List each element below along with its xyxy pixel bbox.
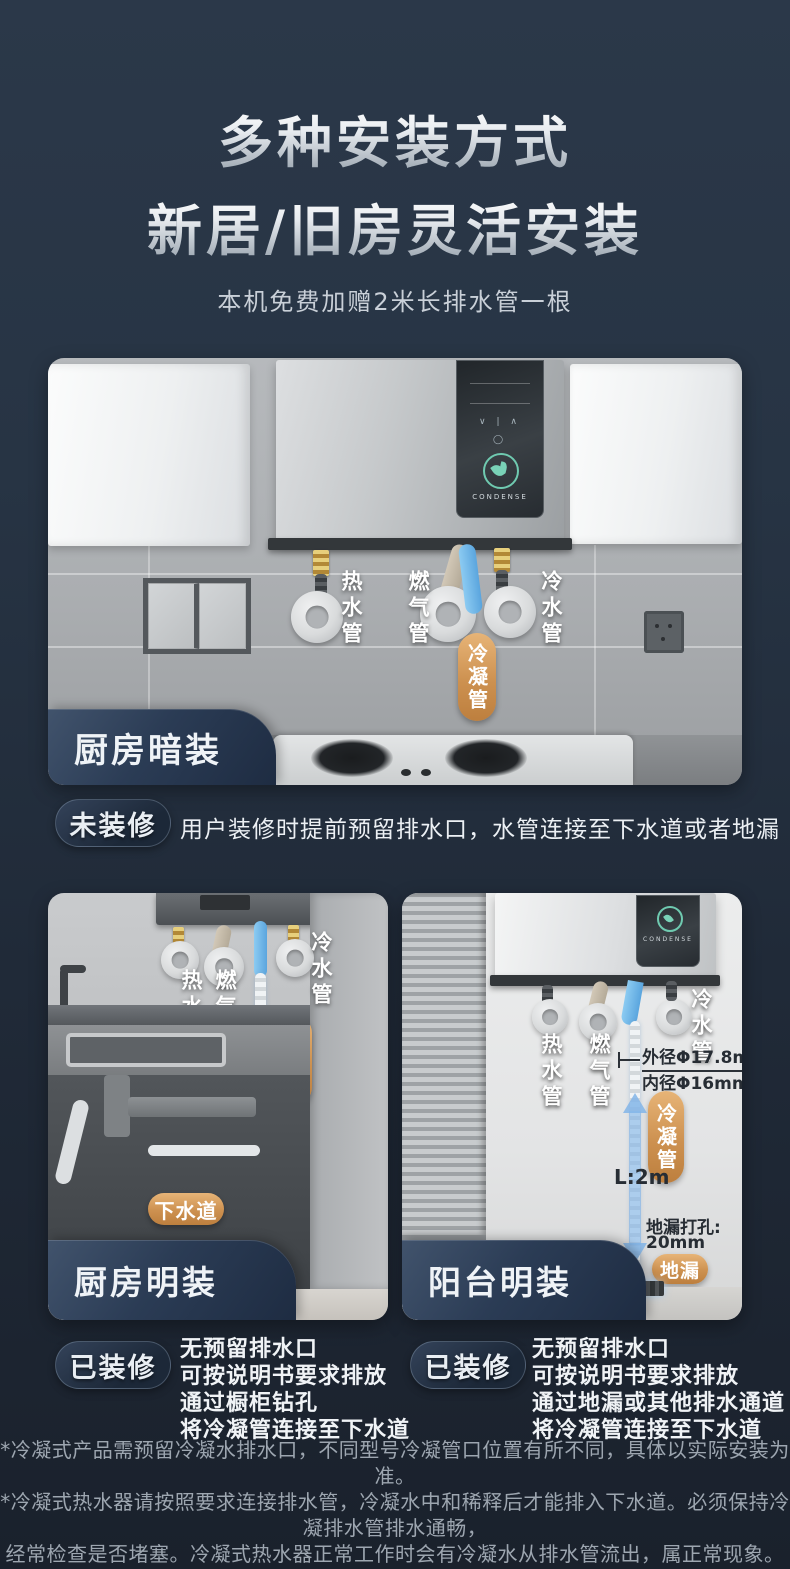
label-cold-water-pipe: 冷水管: [306, 931, 336, 1009]
gas-stove: [273, 735, 633, 785]
badge-sewer: 下水道: [148, 1193, 224, 1225]
bracket-line: [618, 1059, 640, 1061]
tile-line: [594, 545, 596, 735]
cold-pipe-fitting: [666, 981, 677, 1001]
renovated-left-line: 无预留排水口: [180, 1336, 410, 1363]
label-gas-pipe: 燃气管: [403, 570, 433, 648]
renovated-right-line: 无预留排水口: [532, 1336, 785, 1363]
burner-left: [311, 739, 393, 777]
label-hot-water-pipe: 热水管: [536, 1033, 566, 1111]
window-shutter: [402, 893, 486, 1235]
annotation-length: L:2m: [614, 1165, 670, 1189]
condensate-pipe-blue: [620, 980, 643, 1026]
brand-text: CONDENSE: [637, 936, 699, 943]
scene-kitchen-hidden: ∨ | ∧ ◯ CONDENSE 热水管 燃气管 冷水管 冷凝管: [48, 358, 742, 785]
counter-front: [48, 1025, 310, 1075]
hot-pipe-flange: [532, 999, 568, 1035]
leaf-logo-icon: [657, 906, 683, 932]
power-icon: ◯: [457, 435, 543, 445]
footnotes: *冷凝式产品需预留冷凝水排水口，不同型号冷凝管口位置有所不同，具体以实际安装为准…: [0, 1437, 790, 1569]
badge-condensate-pipe: 冷凝管: [458, 633, 496, 721]
annotation-inner-diameter: 内径Φ16mm: [642, 1069, 742, 1094]
gift-note: 本机免费加赠2米长排水管一根: [0, 282, 790, 317]
wall-switch: [143, 578, 251, 654]
tile-line: [48, 573, 742, 575]
scene-badge-kitchen-hidden: 厨房暗装: [48, 709, 276, 785]
p-trap: [96, 1131, 138, 1173]
condensate-pipe-blue: [254, 921, 267, 977]
condensate-elbow: [148, 1145, 260, 1156]
scene-badge-balcony-exposed: 阳台明装: [402, 1240, 646, 1320]
renovated-left-line: 可按说明书要求排放: [180, 1363, 410, 1390]
tag-renovated-right: 已装修: [410, 1341, 526, 1389]
wall-socket: [644, 611, 684, 653]
annotation-drill-value: 20mm: [646, 1233, 705, 1253]
white-drain-pipe: [54, 1098, 90, 1185]
page-subtitle-title: 新居/旧房灵活安装: [0, 186, 790, 266]
label-cold-water-pipe: 冷水管: [536, 570, 566, 648]
annotation-outer-diameter: 外径Φ17.8mm: [642, 1043, 742, 1072]
tag-renovated-left: 已装修: [55, 1341, 171, 1389]
footnote-line: 经常检查是否堵塞。冷凝式热水器正常工作时会有冷凝水从排水管流出，属正常现象。冷凝…: [0, 1541, 790, 1569]
stove-knob: [421, 769, 431, 776]
panel-buttons: ∨ | ∧: [457, 417, 543, 427]
renovated-left-line: 通过橱柜钻孔: [180, 1390, 410, 1417]
horizontal-pipe: [128, 1097, 256, 1117]
promo-page: 多种安装方式 新居/旧房灵活安装 本机免费加赠2米长排水管一根 ∨ | ∧ ◯ …: [0, 0, 790, 1569]
water-heater: CONDENSE: [495, 893, 716, 977]
tag-not-renovated: 未装修: [55, 799, 171, 847]
burner-right: [445, 739, 527, 777]
sink: [66, 1033, 226, 1067]
footnote-line: *冷凝式热水器请按照要求连接排水管，冷凝水中和稀释后才能排入下水道。必须保持冷凝…: [0, 1489, 790, 1541]
footnote-line: *冷凝式产品需预留冷凝水排水口，不同型号冷凝管口位置有所不同，具体以实际安装为准…: [0, 1437, 790, 1489]
stove-knob: [401, 769, 411, 776]
label-gas-pipe: 燃气管: [584, 1033, 614, 1111]
page-title: 多种安装方式: [0, 98, 790, 178]
badge-floor-drain: 地漏: [652, 1254, 708, 1284]
arrow-up-icon: [623, 1093, 647, 1113]
renovated-right-line: 通过地漏或其他排水通道: [532, 1390, 785, 1417]
faucet: [60, 969, 68, 1009]
leaf-logo-icon: [483, 453, 519, 489]
drain-pipe: [104, 1075, 130, 1137]
water-heater: ∨ | ∧ ◯ CONDENSE: [276, 360, 564, 544]
brand-text: CONDENSE: [457, 493, 543, 501]
renovated-right-line: 可按说明书要求排放: [532, 1363, 785, 1390]
hot-pipe-fitting: [313, 550, 329, 576]
faucet-spout: [60, 965, 86, 973]
cabinet-right: [570, 364, 742, 544]
cabinet-left: [48, 364, 250, 546]
scene-kitchen-exposed: 热水管 燃气管 冷水管 冷凝管 下水道 厨房明装: [48, 893, 388, 1320]
heater-vent: [200, 895, 250, 910]
renovated-left-description: 无预留排水口 可按说明书要求排放 通过橱柜钻孔 将冷凝管连接至下水道: [180, 1336, 410, 1444]
countertop: [48, 1005, 310, 1025]
cold-pipe-fitting: [494, 548, 510, 572]
heater-control-panel: ∨ | ∧ ◯ CONDENSE: [456, 360, 544, 518]
label-hot-water-pipe: 热水管: [336, 570, 366, 648]
renovated-right-description: 无预留排水口 可按说明书要求排放 通过地漏或其他排水通道 将冷凝管连接至下水道: [532, 1336, 785, 1444]
heater-control-panel: CONDENSE: [636, 895, 700, 967]
scene-badge-kitchen-exposed: 厨房明装: [48, 1240, 296, 1320]
heater-bottom-strip: [268, 538, 572, 550]
not-renovated-description: 用户装修时提前预留排水口，水管连接至下水道或者地漏: [180, 810, 780, 844]
scene-balcony-exposed: CONDENSE 热水管 燃气管 冷水管 外径Φ17.8mm 内径Φ16mm 冷…: [402, 893, 742, 1320]
cold-pipe-flange: [484, 586, 536, 638]
